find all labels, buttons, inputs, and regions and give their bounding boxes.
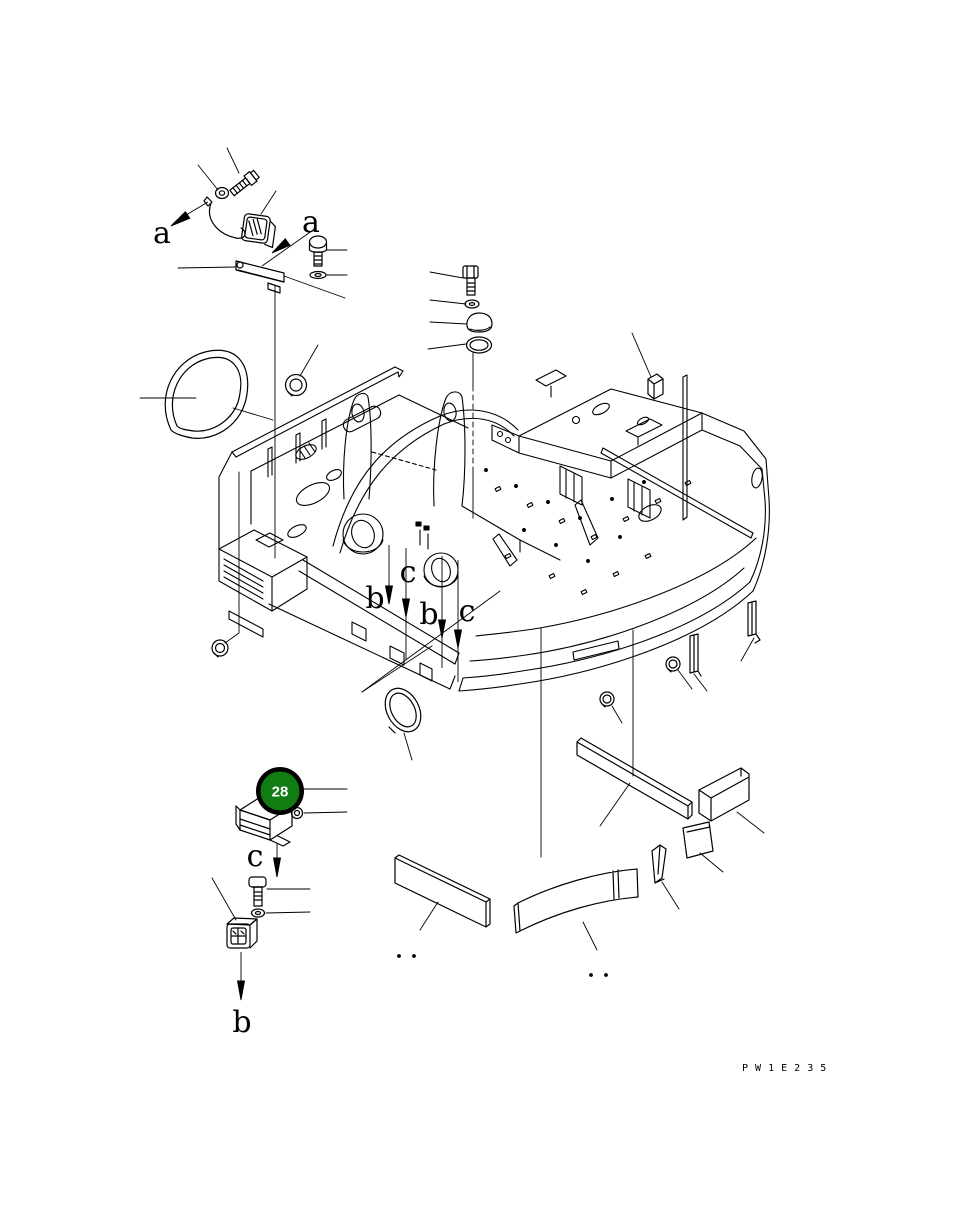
seal-ring xyxy=(467,337,492,353)
assembly-top-bolt-parts xyxy=(463,266,492,353)
washer xyxy=(465,300,479,308)
insertion-arrow xyxy=(386,586,393,604)
exploded-parts-drawing: a a c b b c c b 28 P W 1 E 2 3 5 xyxy=(0,0,963,1222)
parts-diagram-page: a a c b b c c b 28 P W 1 E 2 3 5 xyxy=(0,0,963,1222)
lamp xyxy=(227,918,257,948)
cap-plug xyxy=(467,313,492,332)
washer xyxy=(310,272,326,279)
part-number-badge-label: 28 xyxy=(272,784,289,801)
cushion-block-part xyxy=(648,374,663,399)
drawing-code: P W 1 E 2 3 5 xyxy=(742,1063,827,1074)
deck-detail-marks xyxy=(485,469,691,595)
callout-c-2: c xyxy=(459,594,476,629)
lamp xyxy=(241,213,277,247)
bolt xyxy=(228,169,260,198)
sliver-seal xyxy=(652,845,666,883)
grommet-part xyxy=(286,375,307,397)
callout-a-2: a xyxy=(302,205,320,240)
leader-lines xyxy=(140,148,764,950)
wire-harness xyxy=(210,203,245,238)
washer xyxy=(252,909,265,917)
bolt xyxy=(249,877,266,906)
insertion-arrows xyxy=(171,202,462,1000)
callout-c-1: c xyxy=(400,555,417,590)
seal-ring-part xyxy=(378,682,428,738)
insertion-arrow xyxy=(171,212,190,226)
small-plate xyxy=(683,822,713,858)
assembly-b-parts xyxy=(227,918,257,948)
bracket-clip xyxy=(268,283,280,293)
bolt-vertical xyxy=(310,236,327,266)
grommet-part xyxy=(666,657,680,672)
frame-line-art xyxy=(219,367,769,691)
flat-plate-seal xyxy=(395,855,490,927)
callout-b-1: b xyxy=(365,581,384,616)
insertion-arrow xyxy=(403,599,410,617)
bent-plate xyxy=(699,768,749,821)
nut xyxy=(216,188,229,199)
oval-seal-part xyxy=(165,350,247,438)
grommet-part xyxy=(600,692,614,707)
seal-strip xyxy=(690,634,701,676)
long-bar-seal xyxy=(577,738,692,819)
curved-strip-seal xyxy=(514,869,638,933)
callout-b-3: b xyxy=(232,1005,251,1040)
bracket-bolt xyxy=(237,262,243,268)
insertion-arrow xyxy=(455,630,462,648)
insertion-arrow xyxy=(272,239,290,253)
callout-c-3: c xyxy=(247,839,264,874)
seal-strip xyxy=(748,601,760,643)
callout-b-2: b xyxy=(419,597,438,632)
seal-strip-parts xyxy=(395,601,760,976)
callout-a-1: a xyxy=(153,216,171,251)
part-number-badge[interactable]: 28 xyxy=(256,767,304,815)
insertion-arrow xyxy=(238,981,245,1000)
grommet-part xyxy=(212,640,228,657)
bolt xyxy=(463,266,478,295)
insertion-arrow xyxy=(274,858,281,877)
